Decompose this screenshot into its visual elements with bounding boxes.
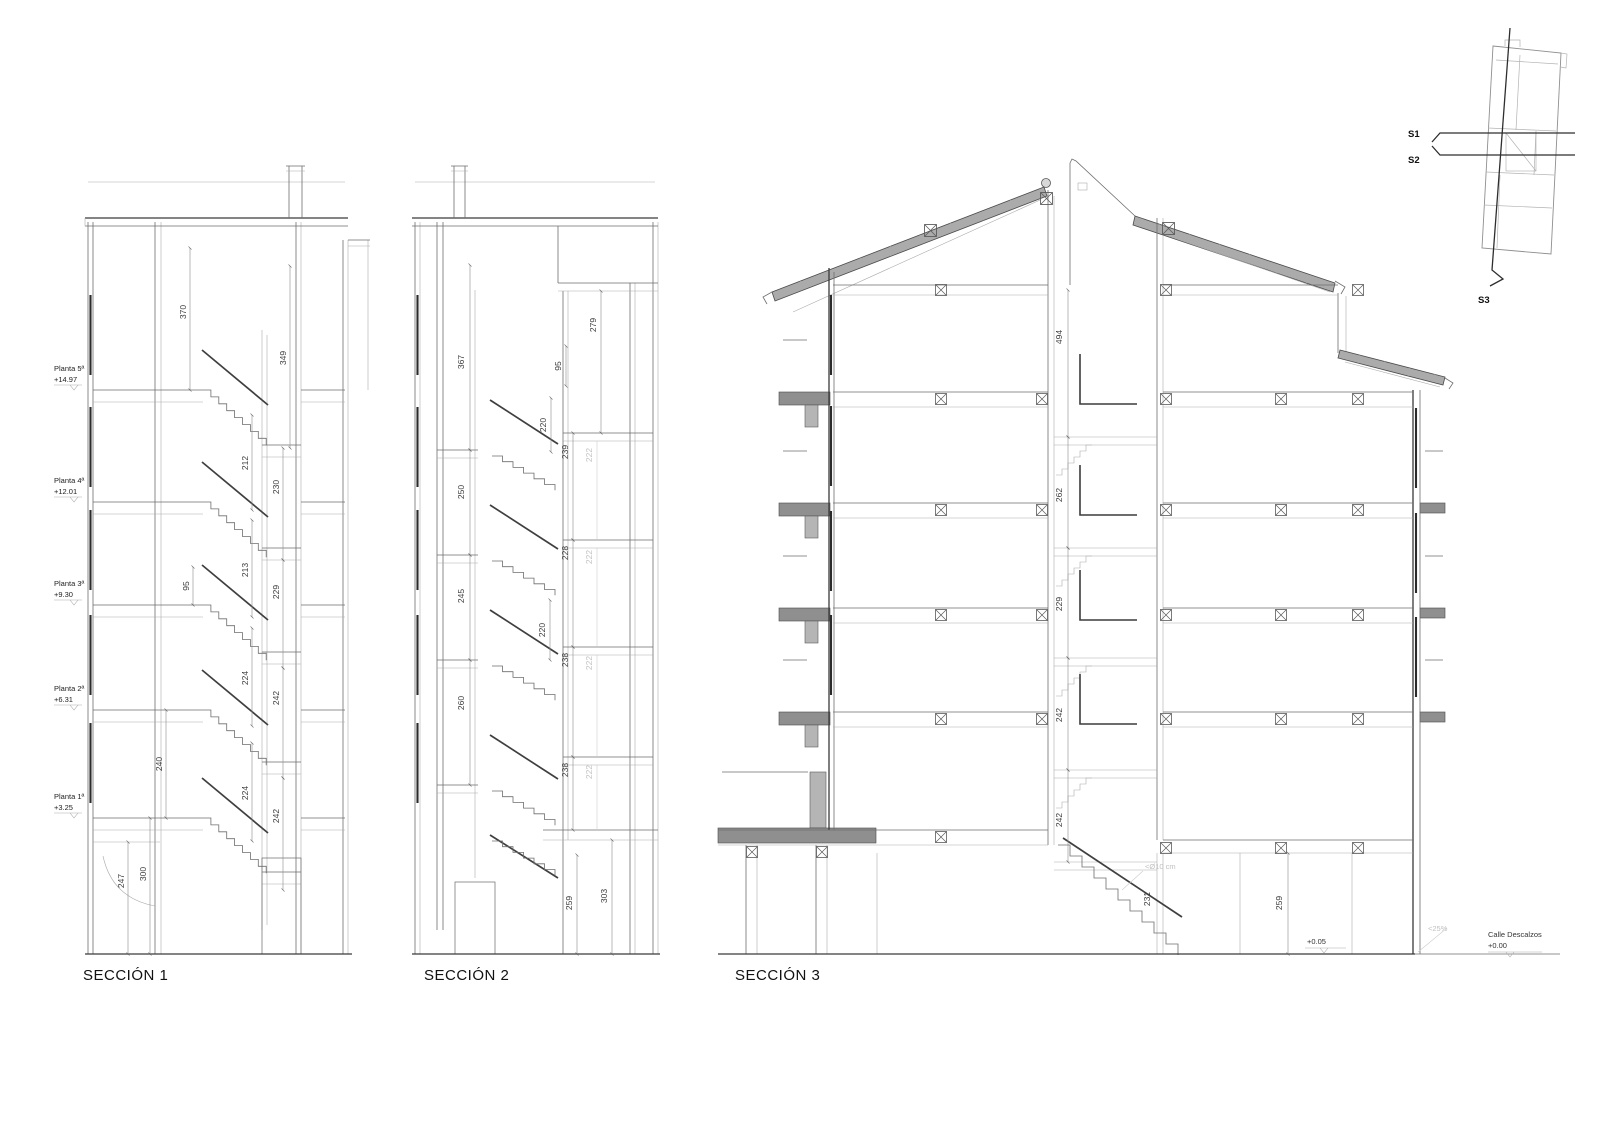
section-2-walls	[415, 222, 658, 954]
entry-level-note: +0.05	[1307, 937, 1326, 946]
svg-text:+14.97: +14.97	[54, 375, 77, 384]
dim-245: 245	[456, 589, 466, 603]
dim-349: 349	[278, 351, 288, 365]
svg-text:+9.30: +9.30	[54, 590, 73, 599]
dim-242-upper: 242	[271, 691, 281, 705]
key-plan-label-s3: S3	[1478, 295, 1490, 306]
dim-367: 367	[456, 355, 466, 369]
key-plan-label-s2: S2	[1408, 155, 1420, 166]
section-cut-lines	[1432, 28, 1575, 286]
dim-242-upper: 242	[1054, 708, 1064, 722]
section-1-roof	[85, 166, 370, 246]
floor-label-planta-4: Planta 4ª +12.01	[54, 476, 85, 502]
dim-229: 229	[271, 585, 281, 599]
floor-label-planta-3: Planta 3ª +9.30	[54, 579, 85, 605]
dim-370: 370	[178, 305, 188, 319]
section-1-title: SECCIÓN 1	[83, 967, 168, 984]
left-roof-slope	[772, 187, 1047, 301]
section-3-balconies-left	[718, 340, 876, 843]
portal-stair	[262, 858, 301, 954]
section-1-floors	[93, 390, 345, 884]
svg-text:+6.31: +6.31	[54, 695, 73, 704]
duct-run	[1080, 354, 1137, 404]
dim-222-b: 222	[584, 550, 594, 564]
dim-300: 300	[138, 867, 148, 881]
dim-259: 259	[564, 896, 574, 910]
svg-text:+12.01: +12.01	[54, 487, 77, 496]
section-1-walls	[88, 222, 368, 954]
section-3-roof	[763, 159, 1453, 389]
svg-text:+3.25: +3.25	[54, 803, 73, 812]
dim-259: 259	[1274, 896, 1284, 910]
dim-260: 260	[456, 696, 466, 710]
dim-229: 229	[1054, 597, 1064, 611]
dim-222-c: 222	[584, 656, 594, 670]
floor-label-planta-2: Planta 2ª +6.31	[54, 684, 85, 710]
svg-text:Planta 5ª: Planta 5ª	[54, 364, 85, 373]
cut-line-s1	[1432, 133, 1575, 142]
dim-224-lower: 224	[240, 786, 250, 800]
svg-text:Planta 2ª: Planta 2ª	[54, 684, 85, 693]
dim-240: 240	[154, 757, 164, 771]
section-1-dimension-lines	[128, 248, 290, 954]
svg-text:Planta 1ª: Planta 1ª	[54, 792, 85, 801]
svg-text:Planta 4ª: Planta 4ª	[54, 476, 85, 485]
duct-run	[1080, 674, 1137, 724]
dim-250: 250	[456, 485, 466, 499]
cut-line-s3	[1490, 28, 1510, 286]
dim-220-lower: 220	[537, 623, 547, 637]
svg-text:Planta 3ª: Planta 3ª	[54, 579, 85, 588]
section-3-windows	[831, 295, 1416, 697]
architectural-sheet: 370 349 212 230 95 213 229 224 242 240 2…	[0, 0, 1612, 1140]
duct-run	[1080, 570, 1137, 620]
section-2-title: SECCIÓN 2	[424, 967, 509, 984]
section-2-dimension-texts: 367 250 245 260 279 95 220 239 228 220 2…	[456, 318, 609, 910]
section-3-floors	[718, 285, 1413, 853]
dim-262: 262	[1054, 488, 1064, 502]
section-3-balconies-right	[1420, 451, 1445, 722]
chimney	[286, 166, 305, 218]
slope-note: <25%	[1428, 924, 1448, 933]
dim-228: 228	[560, 546, 570, 560]
section-3-beams	[747, 193, 1364, 858]
section-titles: SECCIÓN 1 SECCIÓN 2 SECCIÓN 3	[83, 967, 820, 984]
section-3-title: SECCIÓN 3	[735, 967, 820, 984]
stair-tower	[1070, 159, 1135, 285]
dim-220-upper: 220	[538, 418, 548, 432]
section-2-dimension-lines	[470, 265, 612, 954]
terrace-balcony	[718, 772, 876, 843]
dim-224-upper: 224	[240, 671, 250, 685]
section-3-entrance-stair	[1058, 838, 1182, 955]
section-2-stairs	[455, 400, 558, 954]
street-name-label: Calle Descalzos	[1488, 930, 1542, 939]
duct-run	[1080, 465, 1137, 515]
section-1-drawing: 370 349 212 230 95 213 229 224 242 240 2…	[54, 166, 370, 954]
street-level-label: +0.00	[1488, 941, 1507, 950]
right-eave-gutter	[1335, 281, 1345, 294]
dim-279: 279	[588, 318, 598, 332]
plan-outline	[1482, 46, 1561, 254]
key-plan: S1 S2 S3	[1408, 28, 1575, 306]
cut-line-s2	[1432, 146, 1575, 155]
dim-303: 303	[599, 889, 609, 903]
ridge-finial	[1042, 179, 1051, 188]
pipe-note: <Ø10 cm	[1145, 862, 1176, 871]
section-2-roof	[412, 166, 658, 291]
dim-222-a: 222	[584, 448, 594, 462]
dim-494: 494	[1054, 330, 1064, 344]
section-3-drawing: 494 262 229 242 242 231 259 <Ø10 cm +0.0…	[718, 159, 1560, 957]
floor-label-planta-5: Planta 5ª +14.97	[54, 364, 85, 390]
dim-95: 95	[181, 581, 191, 591]
dim-212: 212	[240, 456, 250, 470]
section-3-notes: <Ø10 cm +0.05 <25% Calle Descalzos +0.00	[1122, 862, 1542, 957]
dim-95: 95	[553, 361, 563, 371]
section-3-dimension-lines	[1068, 290, 1288, 954]
dim-213: 213	[240, 563, 250, 577]
dim-242-lower: 242	[1054, 813, 1064, 827]
dim-222-d: 222	[584, 765, 594, 779]
section-3-core	[1054, 354, 1157, 870]
right-roof-slope	[1133, 216, 1335, 292]
portal-stair	[455, 882, 495, 954]
chimney	[451, 166, 468, 218]
sections-drawing: 370 349 212 230 95 213 229 224 242 240 2…	[0, 0, 1612, 1140]
section-1-floor-labels: Planta 5ª +14.97 Planta 4ª +12.01 Planta…	[54, 364, 85, 818]
section-2-drawing: 367 250 245 260 279 95 220 239 228 220 2…	[412, 166, 660, 954]
dim-230: 230	[271, 480, 281, 494]
dim-242-lower: 242	[271, 809, 281, 823]
dim-231: 231	[1142, 892, 1152, 906]
dim-247: 247	[116, 874, 126, 888]
left-eave-gutter	[763, 292, 772, 304]
lower-right-roof	[1338, 293, 1453, 389]
dim-239: 239	[560, 445, 570, 459]
floor-label-planta-1: Planta 1ª +3.25	[54, 792, 85, 818]
dim-238-upper: 238	[560, 653, 570, 667]
dim-238-lower: 238	[560, 763, 570, 777]
key-plan-label-s1: S1	[1408, 129, 1420, 140]
